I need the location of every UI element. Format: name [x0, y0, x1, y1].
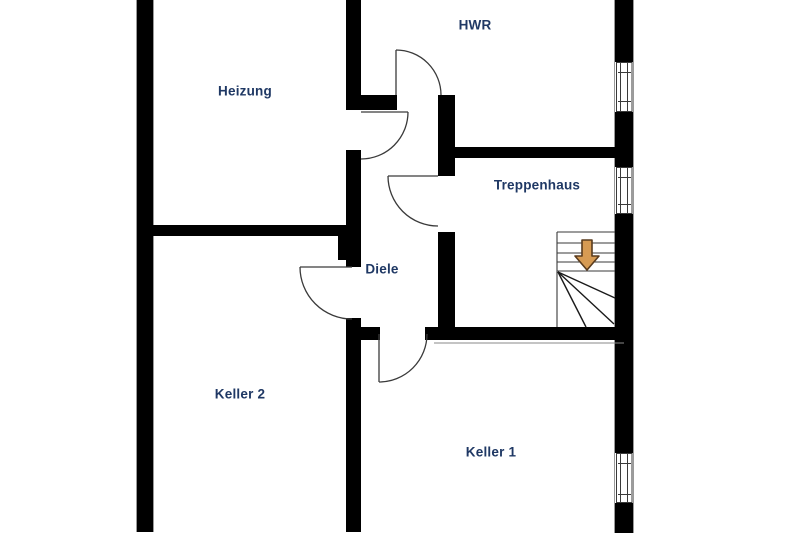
door-keller2: [300, 267, 352, 319]
room-label-keller1: Keller 1: [466, 445, 516, 460]
stair-winder: [558, 272, 586, 327]
wall-outer-right-2: [615, 112, 633, 167]
door-treppenhaus: [388, 176, 438, 226]
door-arc: [361, 112, 408, 159]
room-label-hwr: HWR: [459, 18, 492, 33]
door-arc: [300, 267, 352, 319]
basement-floor-plan: Heizung HWR Treppenhaus Diele Keller 2 K…: [0, 0, 800, 536]
wall-treppenhaus-top: [450, 147, 633, 158]
wall-outer-left: [137, 0, 153, 532]
stair-winder: [558, 272, 615, 298]
room-label-keller2: Keller 2: [215, 387, 265, 402]
wall-treppenhaus-left-upper: [438, 95, 455, 176]
room-label-treppenhaus: Treppenhaus: [494, 178, 580, 193]
door-arc: [388, 176, 438, 226]
wall-outer-right-1: [615, 0, 633, 62]
window-icon-3: [617, 454, 633, 503]
window-icon-2: [617, 168, 633, 214]
door-hwr: [396, 50, 441, 95]
wall-center-top: [346, 0, 361, 110]
door-keller1: [379, 334, 427, 382]
room-label-diele: Diele: [365, 262, 398, 277]
stair-winder: [558, 272, 614, 324]
window-icon-1: [617, 63, 633, 112]
room-label-heizung: Heizung: [218, 84, 272, 99]
door-heizung: [361, 112, 408, 159]
wall-keller1-top-left: [358, 327, 380, 340]
staircase: [434, 232, 624, 343]
stair-direction-down-arrow: [575, 240, 599, 270]
wall-hwr-door-left: [346, 95, 397, 110]
wall-heizung-keller2: [153, 225, 346, 236]
wall-center-low: [346, 318, 361, 532]
door-arc: [379, 334, 427, 382]
wall-center-mid: [346, 150, 361, 267]
door-arc: [396, 50, 441, 95]
floor-plan-drawing: [0, 0, 800, 536]
wall-keller1-top-right: [425, 327, 633, 340]
wall-outer-right-4: [615, 503, 633, 533]
wall-treppenhaus-left-lower: [438, 232, 455, 339]
